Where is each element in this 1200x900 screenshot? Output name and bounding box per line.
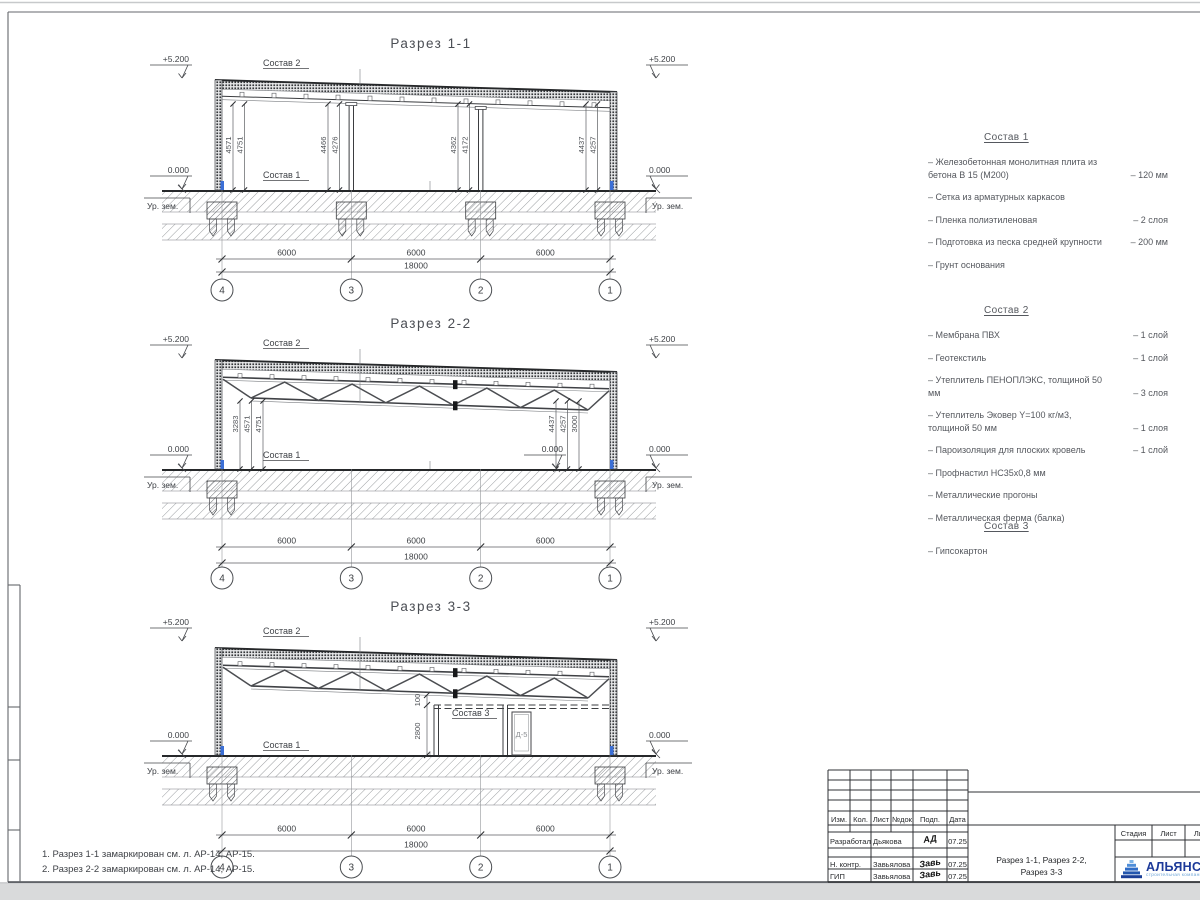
drawing-text: Разрез 3-3 xyxy=(390,599,471,614)
drawing-text: 18000 xyxy=(404,840,428,850)
drawing-text: Ур. зем. xyxy=(147,480,178,490)
drawing-text: Разрез 1-1 xyxy=(390,36,471,51)
drawing-text: Ур. зем. xyxy=(147,201,178,211)
title-block-lines xyxy=(828,770,1200,882)
drawing-text: Состав 2 xyxy=(263,338,300,348)
drawing-text: 6000 xyxy=(277,248,296,258)
drawing-text: 4437 xyxy=(547,416,556,433)
drawing-text: Ур. зем. xyxy=(652,480,683,490)
drawing-text: Состав 2 xyxy=(263,626,300,636)
drawing-text: Разрез 2-2 xyxy=(390,316,471,331)
drawing-text: 0.000 xyxy=(168,165,190,175)
drawing-text: Ур. зем. xyxy=(147,766,178,776)
drawing-text: Состав 1 xyxy=(263,170,300,180)
section-1-1: Разрез 1-1Состав 2Состав 145714751446642… xyxy=(144,36,692,301)
drawing-text: 4276 xyxy=(331,137,340,154)
drawing-text: Состав 2 xyxy=(263,58,300,68)
drawing-text: 1 xyxy=(607,863,613,874)
drawing-text: 6000 xyxy=(536,536,555,546)
drawing-text: 0.000 xyxy=(649,730,671,740)
drawing-text: +5.200 xyxy=(163,334,190,344)
drawing-text: 0.000 xyxy=(168,444,190,454)
drawing-text: 4437 xyxy=(577,137,586,154)
drawing-text: +5.200 xyxy=(649,617,676,627)
drawing-text: 6000 xyxy=(536,824,555,834)
drawing-text: 4172 xyxy=(461,137,470,154)
drawing-text: 6000 xyxy=(407,536,426,546)
drawing-text: 2 xyxy=(478,286,484,297)
drawing-text: +5.200 xyxy=(163,617,190,627)
drawing-text: 3000 xyxy=(570,416,579,433)
drawing-text: 4751 xyxy=(236,137,245,154)
drawing-text: +5.200 xyxy=(649,334,676,344)
drawing-text: 2800 xyxy=(413,723,422,740)
drawing-text: 4362 xyxy=(449,137,458,154)
drawing-text: 18000 xyxy=(404,552,428,562)
drawing-text: 3 xyxy=(349,286,355,297)
drawing-text: 2 xyxy=(478,574,484,585)
drawing-text: 0.000 xyxy=(649,444,671,454)
drawing-text: +5.200 xyxy=(163,54,190,64)
drawing-text: 6000 xyxy=(407,248,426,258)
drawing-text: 2 xyxy=(478,863,484,874)
drawing-text: 6000 xyxy=(277,824,296,834)
drawing-text: 3283 xyxy=(231,416,240,433)
drawing-text: Состав 1 xyxy=(263,450,300,460)
drawing-text: 3 xyxy=(349,863,355,874)
section-2-2: Разрез 2-2Состав 2Состав 132834571475144… xyxy=(144,316,692,589)
drawing-text: 4571 xyxy=(224,137,233,154)
drawing-text: 6000 xyxy=(407,824,426,834)
drawing-text: Состав 3 xyxy=(452,708,489,718)
section-3-3: Разрез 3-3Д-51002800Состав 3Состав 2Сост… xyxy=(144,599,692,878)
drawing-text: +5.200 xyxy=(649,54,676,64)
drawing-text: 6000 xyxy=(277,536,296,546)
drawing-text: 4751 xyxy=(254,416,263,433)
drawing-text: 4571 xyxy=(243,416,252,433)
drawing-sheet: Разрез 1-1Состав 2Состав 145714751446642… xyxy=(0,0,1200,900)
drawing-text: Ур. зем. xyxy=(652,201,683,211)
drawing-text: 100 xyxy=(413,694,422,707)
drawing-text: 1 xyxy=(607,286,613,297)
drawing-text: Ур. зем. xyxy=(652,766,683,776)
drawing-text: Д-5 xyxy=(516,730,528,739)
drawing-text: Состав 1 xyxy=(263,740,300,750)
drawing-text: 3 xyxy=(349,574,355,585)
drawing-text: 4 xyxy=(219,286,225,297)
sections-drawing: Разрез 1-1Состав 2Состав 145714751446642… xyxy=(0,0,1200,900)
drawing-text: 4257 xyxy=(589,137,598,154)
drawing-text: 18000 xyxy=(404,261,428,271)
drawing-text: 4 xyxy=(219,863,225,874)
drawing-text: 4466 xyxy=(319,137,328,154)
drawing-text: 0.000 xyxy=(168,730,190,740)
drawing-text: 0.000 xyxy=(542,444,564,454)
drawing-text: 0.000 xyxy=(649,165,671,175)
drawing-text: 6000 xyxy=(536,248,555,258)
drawing-text: 4 xyxy=(219,574,225,585)
drawing-text: 4257 xyxy=(559,416,568,433)
drawing-text: 1 xyxy=(607,574,613,585)
